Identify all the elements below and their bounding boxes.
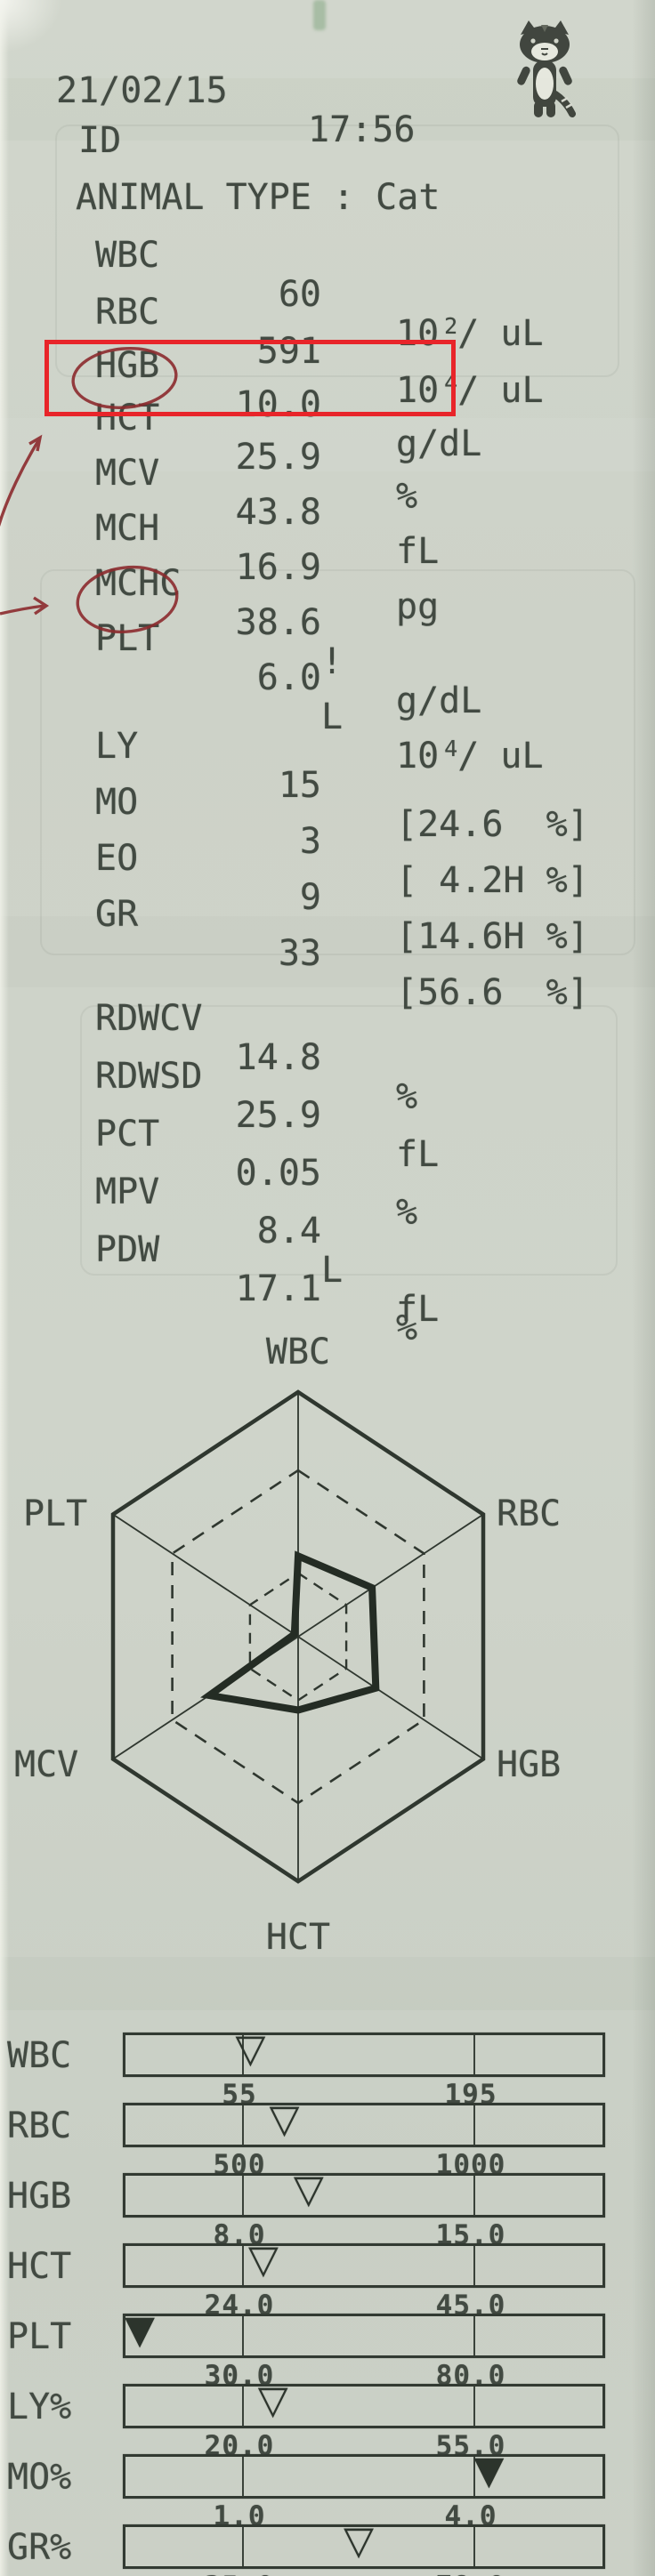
bar-label: HGB bbox=[7, 2177, 71, 2216]
value-marker: ▽ bbox=[344, 2519, 374, 2564]
bar-label: WBC bbox=[7, 2036, 71, 2075]
range-bar: ▽ bbox=[123, 2524, 605, 2569]
radar-chart bbox=[53, 1316, 605, 1966]
low-tick bbox=[242, 2176, 244, 2215]
range-bar: ▼ bbox=[123, 2454, 605, 2499]
abnormal-flag: ! bbox=[321, 642, 343, 681]
value-marker: ▽ bbox=[258, 2379, 288, 2423]
bar-label: GR% bbox=[7, 2528, 71, 2567]
high-tick bbox=[473, 2035, 475, 2074]
low-tick bbox=[242, 2246, 244, 2285]
param-label: GR bbox=[95, 895, 138, 934]
range-bar: ▼ bbox=[123, 2314, 605, 2358]
id-row: ID bbox=[0, 82, 655, 121]
high-tick bbox=[473, 2246, 475, 2285]
result-row-rbc: RBC 591 104/ uL bbox=[0, 254, 655, 293]
value-marker: ▽ bbox=[294, 2168, 324, 2212]
result-row-mo: MO 3 [ 4.2H %] bbox=[0, 744, 655, 783]
low-tick bbox=[242, 2105, 244, 2145]
high-limit: 78.0 bbox=[436, 2571, 506, 2576]
bar-label: HCT bbox=[7, 2247, 71, 2286]
result-row-hct: HCT 25.9 % bbox=[0, 359, 655, 398]
value-marker: ▽ bbox=[270, 2097, 300, 2142]
low-tick bbox=[242, 2527, 244, 2566]
range-bar: ▽ bbox=[123, 2173, 605, 2218]
result-row-pct: PCT 0.05 % bbox=[0, 1075, 655, 1115]
radar-axis-label-hct: HCT bbox=[178, 1918, 418, 1957]
high-tick bbox=[473, 2316, 475, 2355]
range-bar: ▽ bbox=[123, 2103, 605, 2147]
result-row-rdwsd: RDWSD 25.9 fL bbox=[0, 1018, 655, 1057]
range-bar-row-gr: GR% ▽ 35.0 78.0 bbox=[0, 2524, 655, 2576]
range-bar: ▽ bbox=[123, 2033, 605, 2077]
result-row-ly: LY 15 [24.6 %] bbox=[0, 688, 655, 727]
lab-report-printout: 21/02/15 17:56 ID ANIMAL TYPE : Cat WB bbox=[0, 0, 655, 2576]
value-marker: ▼ bbox=[474, 2449, 505, 2493]
result-row-plt: PLT 6.0 L 104/ uL bbox=[0, 580, 655, 619]
result-row-mcv: MCV 43.8 fL bbox=[0, 415, 655, 454]
range-bar: ▽ bbox=[123, 2243, 605, 2288]
radar-axis-label-hgb: HGB bbox=[497, 1745, 561, 1784]
percent-bracket: [14.6H %] bbox=[396, 917, 589, 956]
low-tick bbox=[242, 2316, 244, 2355]
high-tick bbox=[473, 2387, 475, 2426]
result-row-rdwcv: RDWCV 14.8 % bbox=[0, 960, 655, 999]
low-tick bbox=[242, 2457, 244, 2496]
bar-label: MO% bbox=[7, 2458, 71, 2497]
result-row-eo: EO 9 [14.6H %] bbox=[0, 800, 655, 839]
result-row-pdw: PDW 17.1 % bbox=[0, 1191, 655, 1230]
result-row-hgb: HGB 10.0 g/dL bbox=[0, 307, 655, 346]
green-smudge bbox=[313, 0, 326, 30]
bar-label: LY% bbox=[7, 2387, 71, 2427]
bar-label: RBC bbox=[7, 2106, 71, 2145]
result-row-mpv: MPV 8.4 L fL bbox=[0, 1133, 655, 1172]
low-limit: 35.0 bbox=[205, 2571, 275, 2576]
high-tick bbox=[473, 2527, 475, 2566]
param-label: PLT bbox=[95, 619, 159, 658]
result-row-gr: GR 33 [56.6 %] bbox=[0, 856, 655, 895]
high-tick bbox=[473, 2176, 475, 2215]
value-marker: ▼ bbox=[125, 2308, 155, 2353]
result-row-mch: MCH 16.9 pg bbox=[0, 470, 655, 509]
animal-type-row: ANIMAL TYPE : Cat bbox=[0, 139, 655, 178]
high-tick bbox=[473, 2105, 475, 2145]
param-value: 17.1 bbox=[116, 1269, 321, 1308]
radar-axis-label-plt: PLT bbox=[23, 1494, 87, 1534]
radar-data-polygon bbox=[209, 1556, 376, 1710]
result-row-wbc: WBC 60 102/ uL bbox=[0, 197, 655, 236]
value-marker: ▽ bbox=[248, 2238, 279, 2282]
value-marker: ▽ bbox=[236, 2027, 266, 2072]
low-tick bbox=[242, 2387, 244, 2426]
result-row-mchc: MCHC 38.6 ! g/dL bbox=[0, 525, 655, 564]
radar-axis-label-wbc: WBC bbox=[178, 1332, 418, 1372]
abnormal-flag: L bbox=[321, 1251, 343, 1290]
radar-axis-label-mcv: MCV bbox=[14, 1745, 78, 1784]
param-label: PDW bbox=[95, 1230, 159, 1269]
radar-axes bbox=[113, 1392, 483, 1881]
bar-label: PLT bbox=[7, 2317, 71, 2356]
radar-axis-label-rbc: RBC bbox=[497, 1494, 561, 1534]
range-bar: ▽ bbox=[123, 2384, 605, 2428]
